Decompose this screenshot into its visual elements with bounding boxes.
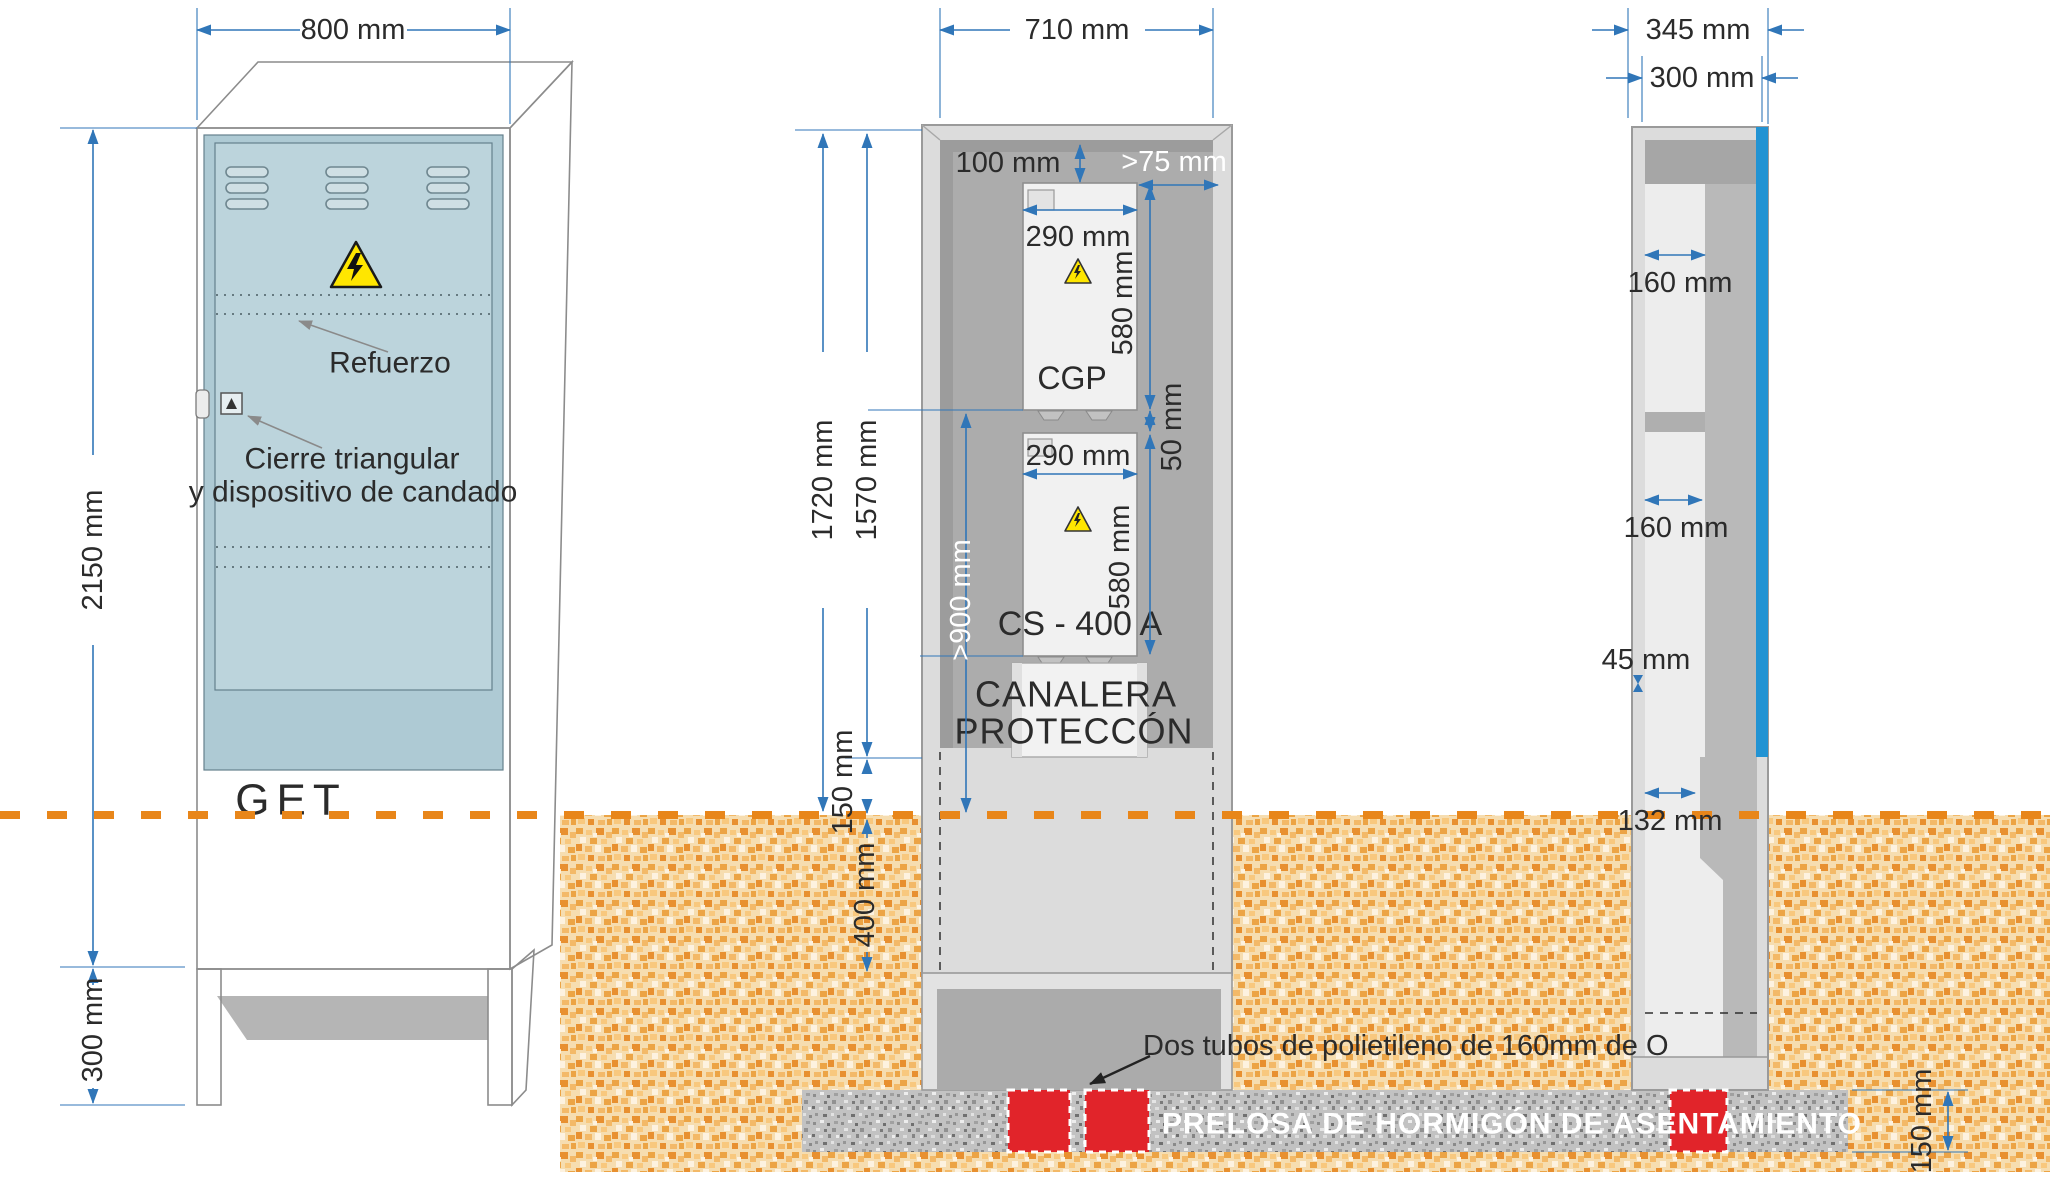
front-view-cabinet: Refuerzo Cierre triangular y dispositivo… — [189, 62, 572, 1105]
dim-front-width-label: 800 mm — [301, 14, 406, 46]
cabinet-top-face — [197, 62, 572, 128]
drawing-canvas: Refuerzo Cierre triangular y dispositivo… — [0, 0, 2050, 1196]
dim-inner-height: 1570 mm — [845, 134, 922, 758]
dim-top-gap-label: 100 mm — [956, 147, 1061, 179]
slab-label: PRELOSA DE HORMIGÓN DE ASENTAMIENTO — [1162, 1107, 1862, 1141]
dim-slab-thickness-label: 150 mm — [1906, 1069, 1938, 1174]
dim-section-width-label: 710 mm — [1025, 14, 1130, 46]
dim-buried: 400 mm — [849, 820, 881, 971]
side-equipment-lower — [1645, 432, 1705, 757]
dim-box-gap: 50 mm — [1150, 383, 1188, 472]
dim-front-base: 300 mm — [60, 969, 185, 1105]
dim-cs-height-label: 580 mm — [1104, 505, 1136, 610]
blue-strip — [1756, 127, 1768, 757]
dim-side-outer-width-label: 345 mm — [1646, 14, 1751, 46]
dim-buried-label: 400 mm — [849, 843, 881, 948]
cabinet-leg-left — [197, 969, 221, 1105]
dim-side-inner-width: 300 mm — [1606, 56, 1798, 122]
lock-label-line2: y dispositivo de candado — [189, 476, 518, 509]
dim-min-height-label: >900 mm — [945, 539, 977, 661]
cabinet-door-panel — [215, 143, 492, 690]
cabinet-leg-side — [512, 950, 534, 1105]
cs-label: CS - 400 A — [998, 605, 1163, 643]
dim-lower-depth-label: 160 mm — [1624, 512, 1729, 544]
dim-wall-thickness-label: 45 mm — [1602, 644, 1691, 676]
dim-box-gap-label: 50 mm — [1156, 383, 1188, 472]
dim-section-width: 710 mm — [940, 8, 1213, 118]
duct-label-line1: CANALERA — [975, 674, 1177, 715]
dim-front-height: 2150 mm — [60, 128, 197, 967]
dim-buried-depth-label: 132 mm — [1618, 805, 1723, 837]
dim-side-inner-width-label: 300 mm — [1650, 62, 1755, 94]
dim-cs-width-label: 290 mm — [1026, 440, 1131, 472]
dim-upper-depth-label: 160 mm — [1628, 267, 1733, 299]
dim-front-height-label: 2150 mm — [77, 490, 109, 611]
tube-2 — [1085, 1090, 1149, 1152]
tubes-label: Dos tubos de polietileno de 160mm de O — [1143, 1030, 1669, 1062]
reinforcement-label: Refuerzo — [329, 347, 451, 380]
dim-total-height-label: 1720 mm — [807, 420, 839, 541]
door-handle — [196, 390, 209, 418]
duct-label-line2: PROTECCÓN — [954, 711, 1193, 752]
side-shelf — [1645, 412, 1705, 432]
cgp-latch — [1028, 190, 1054, 210]
dim-cgp-width-label: 290 mm — [1026, 221, 1131, 253]
lock-label-line1: Cierre triangular — [244, 443, 459, 476]
cgp-label: CGP — [1037, 360, 1106, 396]
dim-side-gap-label: >75 mm — [1121, 146, 1227, 178]
dim-front-base-label: 300 mm — [77, 978, 109, 1083]
cabinet-leg-right — [488, 969, 512, 1105]
vent-grille-top — [226, 167, 469, 209]
technical-diagram: Refuerzo Cierre triangular y dispositivo… — [0, 0, 2050, 1196]
side-cavity-top — [1645, 140, 1757, 184]
tube-1 — [1008, 1090, 1070, 1152]
dim-inner-height-label: 1570 mm — [851, 420, 883, 541]
dim-front-width: 800 mm — [197, 8, 510, 124]
dim-cgp-height-label: 580 mm — [1107, 251, 1139, 356]
base-recess-shadow — [217, 996, 488, 1040]
dim-cs-width: 290 mm — [1023, 440, 1137, 474]
dim-above-ground-label: 150 mm — [827, 730, 859, 835]
